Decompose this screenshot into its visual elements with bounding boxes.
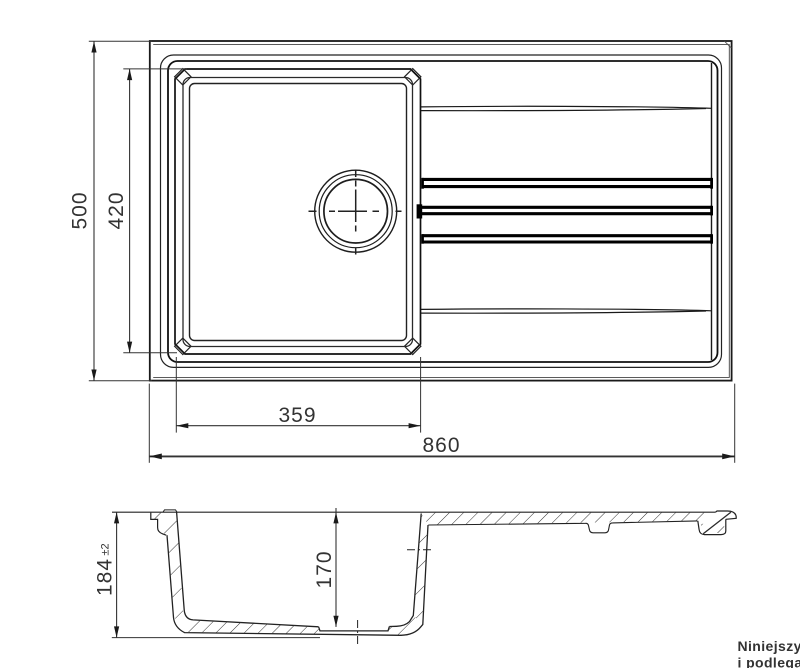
svg-text:420: 420 [105,191,128,229]
svg-text:i podlega: i podlega [738,655,800,668]
svg-text:359: 359 [278,404,316,427]
svg-text:500: 500 [69,191,92,229]
svg-text:±2: ±2 [100,543,112,555]
svg-text:170: 170 [313,550,336,588]
svg-text:Niniejszy: Niniejszy [738,638,800,654]
svg-text:184: 184 [94,558,117,596]
svg-text:860: 860 [422,434,460,457]
